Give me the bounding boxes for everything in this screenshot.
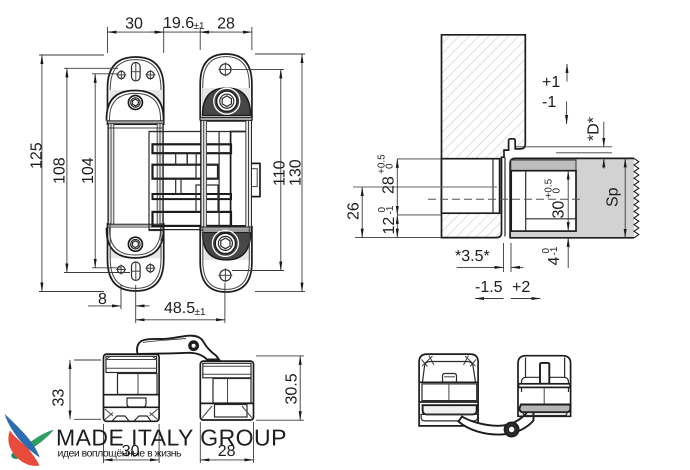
svg-text:19.6: 19.6 (163, 15, 194, 32)
svg-text:±1: ±1 (195, 307, 206, 318)
svg-text:28: 28 (381, 176, 398, 194)
svg-text:12: 12 (381, 217, 398, 235)
svg-text:-1: -1 (385, 205, 396, 214)
svg-text:Sp: Sp (605, 187, 622, 207)
svg-text:28: 28 (218, 443, 236, 460)
svg-text:30: 30 (122, 443, 140, 460)
svg-text:30: 30 (551, 201, 568, 219)
svg-text:110: 110 (272, 160, 289, 186)
svg-text:48.5: 48.5 (164, 300, 195, 317)
svg-text:125: 125 (29, 142, 46, 169)
svg-text:*3.5*: *3.5* (455, 248, 490, 265)
svg-text:104: 104 (80, 157, 97, 184)
svg-text:-1: -1 (549, 246, 560, 255)
svg-text:0: 0 (385, 163, 396, 169)
svg-text:30.5: 30.5 (284, 373, 301, 404)
svg-text:*D*: *D* (586, 117, 603, 141)
svg-text:26: 26 (346, 202, 363, 220)
svg-text:108: 108 (52, 157, 69, 184)
svg-text:+1: +1 (542, 74, 560, 91)
svg-text:-1: -1 (542, 94, 556, 111)
svg-text:идеи воплощённые в жизнь: идеи воплощённые в жизнь (58, 448, 183, 460)
svg-text:33: 33 (51, 389, 68, 407)
svg-text:28: 28 (217, 16, 235, 33)
svg-text:-1.5: -1.5 (475, 279, 503, 296)
svg-text:+2: +2 (512, 279, 530, 296)
svg-text:8: 8 (98, 291, 107, 308)
svg-text:4: 4 (546, 257, 563, 266)
svg-text:130: 130 (288, 159, 305, 186)
svg-text:0: 0 (552, 188, 563, 194)
svg-text:±1: ±1 (194, 21, 205, 32)
svg-text:30: 30 (125, 16, 143, 33)
